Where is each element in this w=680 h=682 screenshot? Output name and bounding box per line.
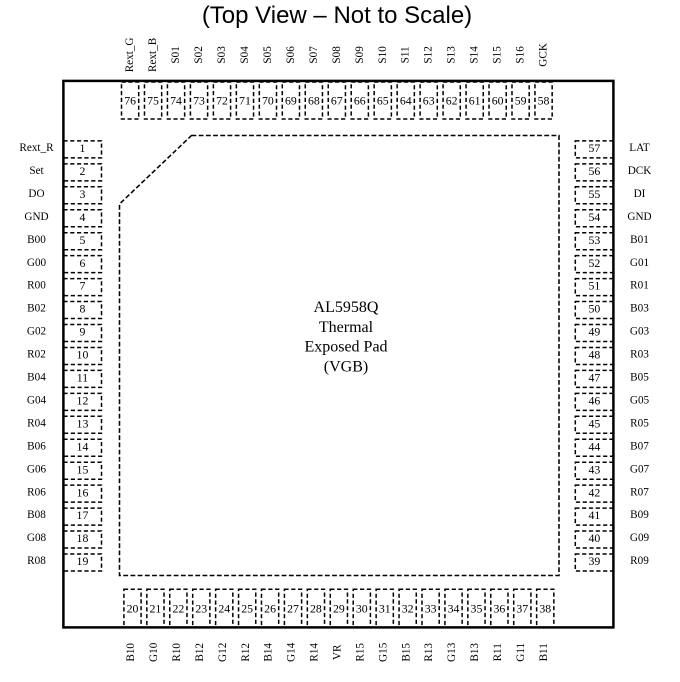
svg-text:B05: B05 bbox=[630, 372, 649, 384]
svg-text:R00: R00 bbox=[27, 280, 46, 292]
svg-text:VR: VR bbox=[331, 644, 343, 660]
svg-text:48: 48 bbox=[588, 348, 600, 362]
svg-text:B15: B15 bbox=[400, 643, 412, 662]
svg-text:S06: S06 bbox=[285, 46, 297, 64]
svg-text:62: 62 bbox=[446, 93, 458, 107]
svg-text:R09: R09 bbox=[630, 555, 649, 567]
svg-text:64: 64 bbox=[400, 93, 412, 107]
svg-text:Set: Set bbox=[29, 165, 44, 177]
svg-text:G13: G13 bbox=[446, 642, 458, 662]
svg-text:GND: GND bbox=[24, 211, 48, 223]
svg-text:21: 21 bbox=[150, 601, 162, 615]
svg-text:B03: B03 bbox=[630, 303, 649, 315]
svg-text:Rext_R: Rext_R bbox=[19, 142, 54, 154]
svg-text:59: 59 bbox=[515, 93, 527, 107]
svg-text:S16: S16 bbox=[515, 46, 527, 64]
svg-text:69: 69 bbox=[285, 93, 297, 107]
svg-text:12: 12 bbox=[77, 393, 89, 407]
svg-text:35: 35 bbox=[471, 601, 483, 615]
svg-text:R11: R11 bbox=[492, 643, 504, 661]
svg-text:Rext_G: Rext_G bbox=[124, 37, 136, 72]
svg-text:7: 7 bbox=[79, 279, 85, 293]
svg-text:50: 50 bbox=[588, 302, 600, 316]
svg-text:65: 65 bbox=[377, 93, 389, 107]
svg-text:B12: B12 bbox=[194, 643, 206, 662]
svg-text:19: 19 bbox=[77, 554, 89, 568]
svg-text:G14: G14 bbox=[286, 642, 298, 662]
svg-text:33: 33 bbox=[425, 601, 437, 615]
svg-text:S09: S09 bbox=[354, 46, 366, 64]
svg-text:AL5958Q: AL5958Q bbox=[314, 299, 379, 316]
svg-text:74: 74 bbox=[170, 93, 182, 107]
svg-text:DO: DO bbox=[28, 188, 44, 200]
svg-text:61: 61 bbox=[469, 93, 481, 107]
svg-text:39: 39 bbox=[588, 554, 600, 568]
svg-text:60: 60 bbox=[492, 93, 504, 107]
svg-text:B14: B14 bbox=[263, 643, 275, 662]
svg-text:B13: B13 bbox=[469, 643, 481, 662]
svg-text:40: 40 bbox=[588, 531, 600, 545]
svg-text:G04: G04 bbox=[27, 394, 47, 406]
svg-text:49: 49 bbox=[588, 325, 600, 339]
svg-text:R04: R04 bbox=[27, 417, 46, 429]
svg-text:GND: GND bbox=[627, 211, 651, 223]
svg-text:17: 17 bbox=[77, 508, 89, 522]
svg-text:R13: R13 bbox=[423, 643, 435, 662]
svg-text:S15: S15 bbox=[492, 46, 504, 64]
svg-text:2: 2 bbox=[79, 164, 85, 178]
svg-text:DCK: DCK bbox=[628, 165, 652, 177]
svg-text:71: 71 bbox=[239, 93, 251, 107]
svg-text:57: 57 bbox=[588, 141, 600, 155]
svg-text:R10: R10 bbox=[171, 643, 183, 662]
svg-text:G02: G02 bbox=[27, 326, 46, 338]
svg-text:S05: S05 bbox=[262, 46, 274, 64]
svg-text:26: 26 bbox=[264, 601, 276, 615]
svg-text:51: 51 bbox=[588, 279, 600, 293]
svg-text:75: 75 bbox=[147, 93, 159, 107]
svg-text:22: 22 bbox=[172, 601, 184, 615]
svg-text:B00: B00 bbox=[27, 234, 46, 246]
svg-text:S14: S14 bbox=[469, 46, 481, 64]
svg-text:G06: G06 bbox=[27, 463, 47, 475]
svg-text:28: 28 bbox=[310, 601, 322, 615]
svg-text:B10: B10 bbox=[125, 643, 137, 662]
svg-text:1: 1 bbox=[79, 141, 85, 155]
svg-text:R12: R12 bbox=[240, 643, 252, 662]
svg-text:S11: S11 bbox=[400, 46, 412, 63]
svg-text:S03: S03 bbox=[216, 46, 228, 64]
svg-text:5: 5 bbox=[79, 233, 85, 247]
svg-text:S01: S01 bbox=[170, 46, 182, 63]
svg-text:G11: G11 bbox=[515, 643, 527, 662]
svg-text:36: 36 bbox=[493, 601, 505, 615]
svg-text:B08: B08 bbox=[27, 509, 46, 521]
svg-text:70: 70 bbox=[262, 93, 274, 107]
svg-text:G15: G15 bbox=[377, 642, 389, 662]
svg-text:9: 9 bbox=[79, 325, 85, 339]
svg-text:34: 34 bbox=[448, 601, 460, 615]
svg-text:46: 46 bbox=[588, 393, 600, 407]
svg-text:GCK: GCK bbox=[538, 43, 550, 67]
svg-text:4: 4 bbox=[79, 210, 85, 224]
svg-text:18: 18 bbox=[77, 531, 89, 545]
svg-text:Thermal: Thermal bbox=[319, 319, 374, 336]
svg-text:16: 16 bbox=[77, 485, 89, 499]
svg-text:11: 11 bbox=[77, 371, 88, 385]
svg-text:B01: B01 bbox=[630, 234, 649, 246]
svg-text:LAT: LAT bbox=[629, 142, 650, 154]
svg-text:38: 38 bbox=[539, 601, 551, 615]
svg-text:56: 56 bbox=[588, 164, 600, 178]
svg-text:30: 30 bbox=[356, 601, 368, 615]
svg-text:G07: G07 bbox=[630, 463, 650, 475]
svg-text:R15: R15 bbox=[354, 643, 366, 662]
svg-text:G09: G09 bbox=[630, 532, 650, 544]
svg-text:10: 10 bbox=[77, 348, 89, 362]
svg-text:13: 13 bbox=[77, 416, 89, 430]
svg-text:G08: G08 bbox=[27, 532, 47, 544]
svg-text:S08: S08 bbox=[331, 46, 343, 64]
svg-text:(VGB): (VGB) bbox=[324, 358, 368, 375]
svg-text:73: 73 bbox=[193, 93, 205, 107]
svg-text:76: 76 bbox=[124, 93, 136, 107]
svg-text:S04: S04 bbox=[239, 46, 251, 64]
svg-text:63: 63 bbox=[423, 93, 435, 107]
svg-text:25: 25 bbox=[241, 601, 253, 615]
svg-text:R06: R06 bbox=[27, 486, 46, 498]
svg-text:R05: R05 bbox=[630, 417, 649, 429]
svg-text:42: 42 bbox=[588, 485, 600, 499]
svg-text:20: 20 bbox=[127, 601, 139, 615]
svg-text:B04: B04 bbox=[27, 372, 46, 384]
svg-text:Exposed Pad: Exposed Pad bbox=[304, 339, 387, 356]
svg-text:53: 53 bbox=[588, 233, 600, 247]
svg-text:R03: R03 bbox=[630, 349, 649, 361]
svg-text:S07: S07 bbox=[308, 46, 320, 64]
svg-text:B11: B11 bbox=[538, 643, 550, 661]
svg-text:B02: B02 bbox=[27, 303, 46, 315]
svg-text:G03: G03 bbox=[630, 326, 650, 338]
svg-text:67: 67 bbox=[331, 93, 343, 107]
svg-text:45: 45 bbox=[588, 416, 600, 430]
svg-text:R01: R01 bbox=[630, 280, 649, 292]
svg-text:68: 68 bbox=[308, 93, 320, 107]
svg-text:S12: S12 bbox=[423, 46, 435, 63]
svg-text:S02: S02 bbox=[193, 46, 205, 63]
svg-text:41: 41 bbox=[588, 508, 600, 522]
svg-text:G00: G00 bbox=[27, 257, 47, 269]
svg-text:DI: DI bbox=[634, 188, 646, 200]
svg-text:B06: B06 bbox=[27, 440, 46, 452]
svg-text:37: 37 bbox=[516, 601, 528, 615]
svg-text:58: 58 bbox=[538, 93, 550, 107]
svg-text:G01: G01 bbox=[630, 257, 649, 269]
svg-text:R02: R02 bbox=[27, 349, 46, 361]
svg-text:R07: R07 bbox=[630, 486, 649, 498]
svg-text:47: 47 bbox=[588, 371, 600, 385]
svg-text:14: 14 bbox=[77, 439, 89, 453]
svg-text:G12: G12 bbox=[217, 643, 229, 662]
svg-text:43: 43 bbox=[588, 462, 600, 476]
svg-text:54: 54 bbox=[588, 210, 600, 224]
svg-text:72: 72 bbox=[216, 93, 228, 107]
svg-text:23: 23 bbox=[195, 601, 207, 615]
svg-text:66: 66 bbox=[354, 93, 366, 107]
svg-text:G05: G05 bbox=[630, 394, 650, 406]
svg-text:3: 3 bbox=[79, 187, 85, 201]
svg-text:32: 32 bbox=[402, 601, 414, 615]
svg-text:52: 52 bbox=[588, 256, 600, 270]
svg-text:R14: R14 bbox=[309, 643, 321, 662]
svg-text:G10: G10 bbox=[148, 642, 160, 662]
svg-text:29: 29 bbox=[333, 601, 345, 615]
svg-text:15: 15 bbox=[77, 462, 89, 476]
svg-text:6: 6 bbox=[79, 256, 85, 270]
svg-text:S10: S10 bbox=[377, 46, 389, 64]
svg-text:S13: S13 bbox=[446, 46, 458, 64]
svg-text:44: 44 bbox=[588, 439, 600, 453]
svg-text:R08: R08 bbox=[27, 555, 46, 567]
svg-text:B07: B07 bbox=[630, 440, 649, 452]
svg-text:55: 55 bbox=[588, 187, 600, 201]
svg-text:24: 24 bbox=[218, 601, 230, 615]
svg-text:31: 31 bbox=[379, 601, 391, 615]
svg-text:27: 27 bbox=[287, 601, 299, 615]
svg-text:(Top View – Not to Scale): (Top View – Not to Scale) bbox=[202, 2, 472, 29]
svg-text:Rext_B: Rext_B bbox=[147, 38, 159, 72]
svg-text:8: 8 bbox=[79, 302, 85, 316]
svg-text:B09: B09 bbox=[630, 509, 649, 521]
